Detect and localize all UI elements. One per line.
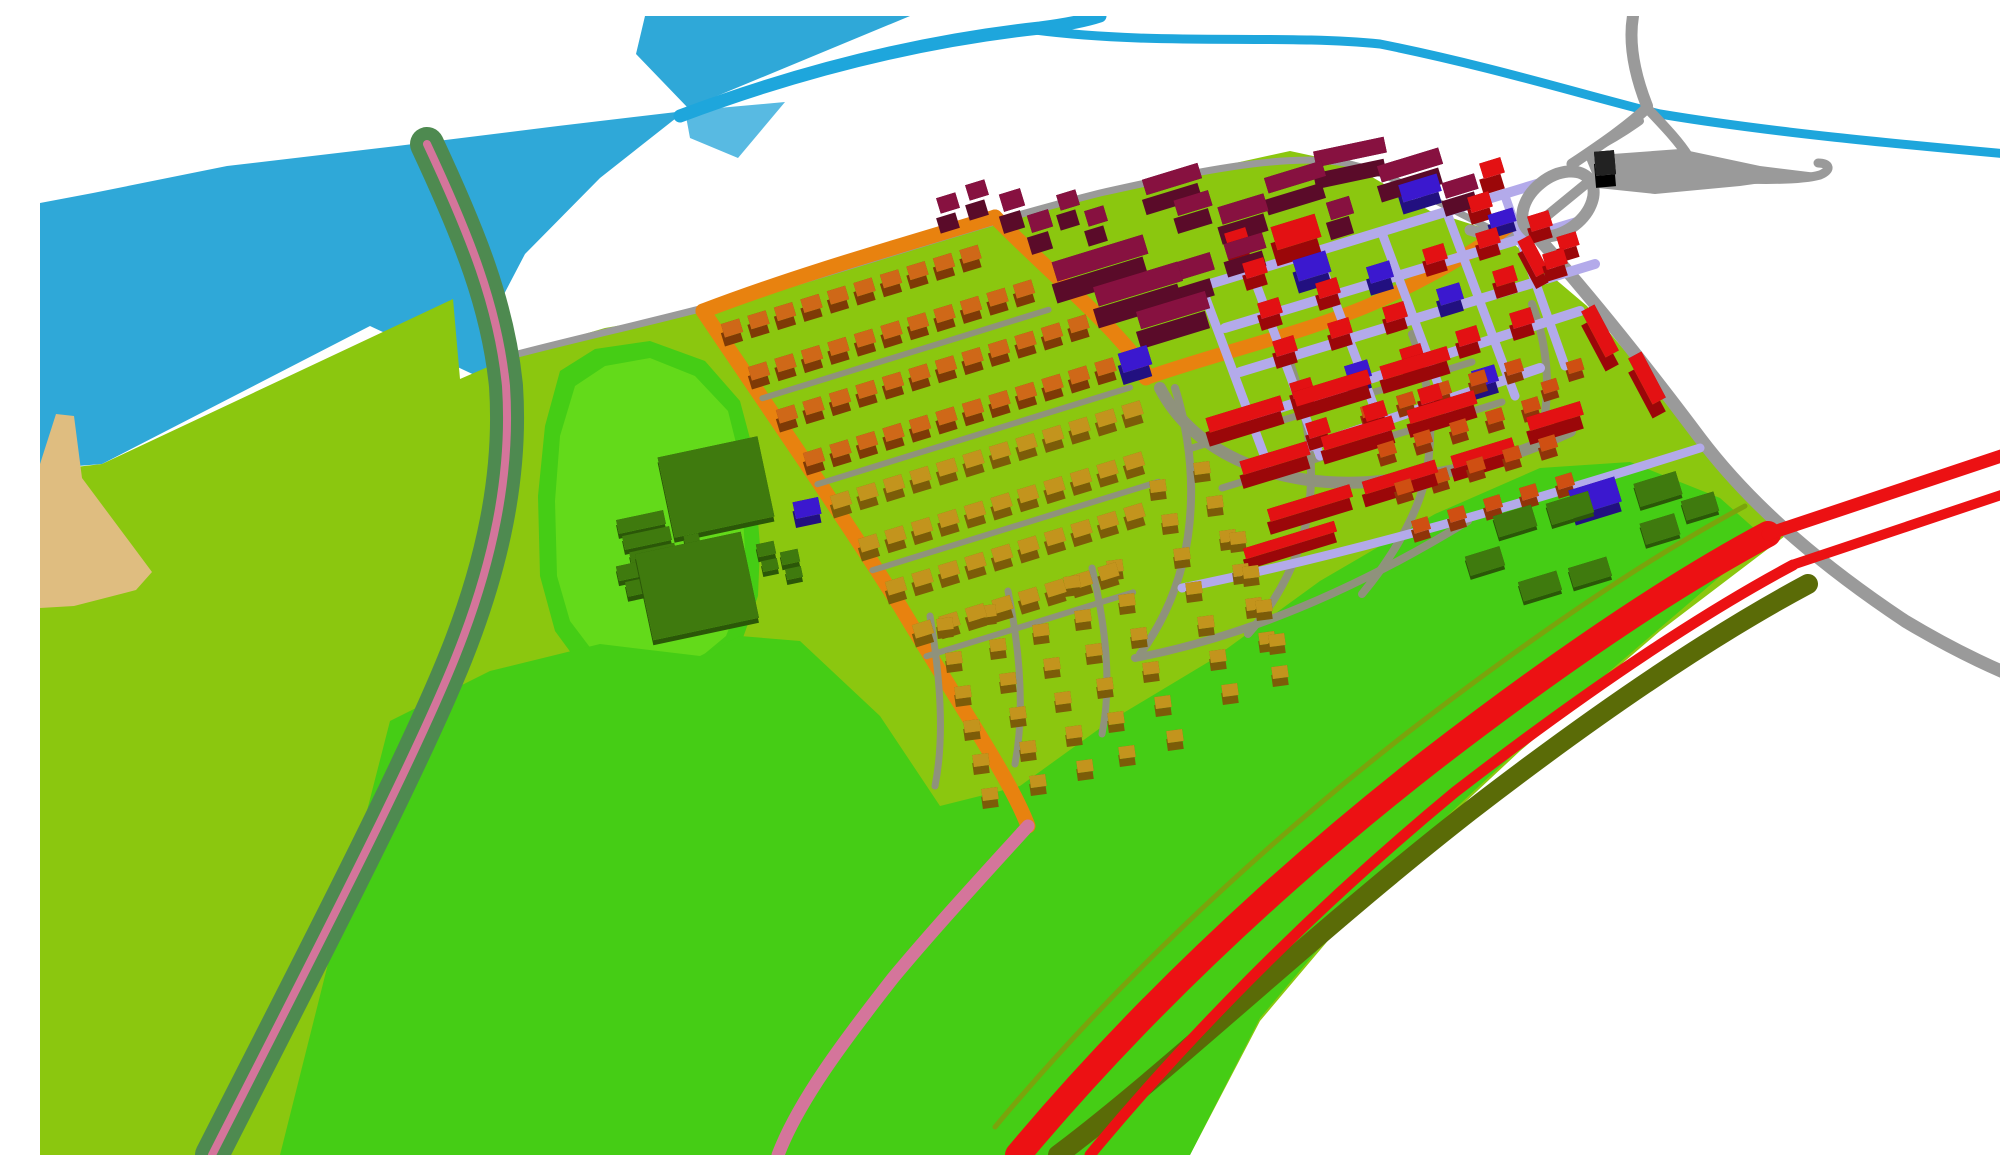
road-north [1631, 16, 1647, 106]
radial-houses-4-house [1074, 609, 1092, 623]
radial-houses-6-house [1221, 683, 1239, 697]
radial-houses-5-house [1118, 593, 1136, 607]
radial-houses-3-house [1065, 725, 1083, 739]
maroon-building [965, 179, 989, 200]
junction-cross-arm [1592, 121, 1640, 150]
radial-houses-4-house [1096, 677, 1114, 691]
radial-houses-4-house [1063, 575, 1081, 589]
radial-houses-6-house [1161, 513, 1179, 527]
3d-map-viewport[interactable] [40, 16, 2000, 1155]
radial-houses-3-house [1076, 759, 1094, 773]
radial-houses-7-house [1193, 461, 1211, 475]
radial-houses-6-house [1209, 649, 1227, 663]
radial-houses-4-house [1107, 711, 1125, 725]
radial-houses-3-house [1054, 691, 1072, 705]
radial-houses-4-house [1118, 745, 1136, 759]
city-model-svg [40, 16, 2000, 1155]
junction-plaza [1585, 149, 1825, 194]
radial-houses-8-house [1229, 531, 1247, 545]
radial-houses-1-house [963, 719, 981, 733]
radial-houses-2-house [999, 672, 1017, 686]
red-building [1479, 157, 1505, 179]
radial-houses-8-house [1255, 599, 1273, 613]
radial-houses-1-house [981, 787, 999, 801]
radial-houses-1-house [972, 753, 990, 767]
radial-houses-5-house [1166, 729, 1184, 743]
radial-houses-6-house [1173, 547, 1191, 561]
radial-houses-6-house [1185, 581, 1203, 595]
radial-houses-2-house [989, 638, 1007, 652]
radial-houses-3-house [1043, 657, 1061, 671]
radial-houses-3-house [1032, 623, 1050, 637]
radial-houses-8-house [1242, 565, 1260, 579]
radial-houses-5-house [1130, 627, 1148, 641]
radial-houses-1-house [954, 685, 972, 699]
radial-houses-2-house [1009, 706, 1027, 720]
highway-float-main [1768, 443, 2000, 534]
radial-houses-6-house [1149, 479, 1167, 493]
radial-houses-1-house [945, 651, 963, 665]
river-east [1035, 30, 2000, 157]
radial-houses-7-house [1206, 495, 1224, 509]
radial-houses-1-house [936, 617, 954, 631]
radial-houses-5-house [1142, 661, 1160, 675]
radial-houses-7-house [1271, 665, 1289, 679]
radial-houses-2-house [1019, 740, 1037, 754]
radial-houses-8-house [1268, 633, 1286, 647]
radial-houses-2-house [1029, 774, 1047, 788]
maroon-building [999, 188, 1025, 212]
maroon-building [936, 192, 960, 213]
radial-houses-4-house [1085, 643, 1103, 657]
radial-houses-6-house [1197, 615, 1215, 629]
black-building [1594, 150, 1616, 176]
radial-houses-5-house [1154, 695, 1172, 709]
